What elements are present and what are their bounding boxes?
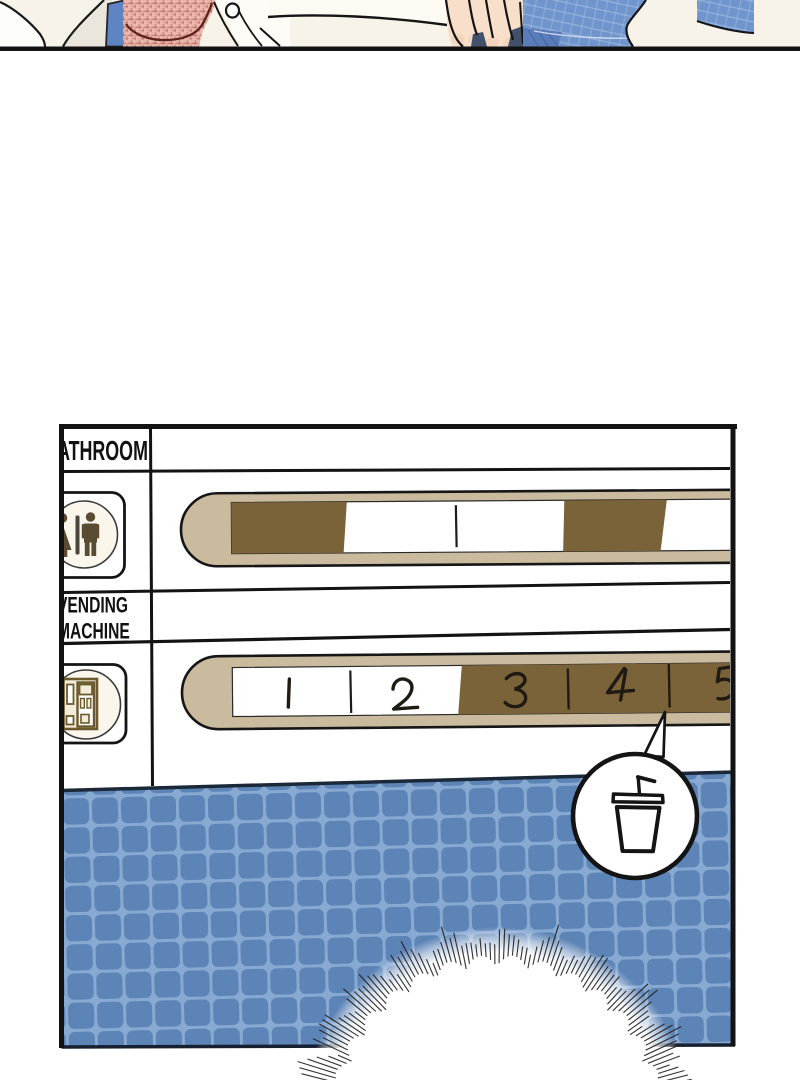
svg-text:MACHINE: MACHINE [57, 620, 130, 644]
svg-text:VENDING: VENDING [57, 594, 128, 618]
